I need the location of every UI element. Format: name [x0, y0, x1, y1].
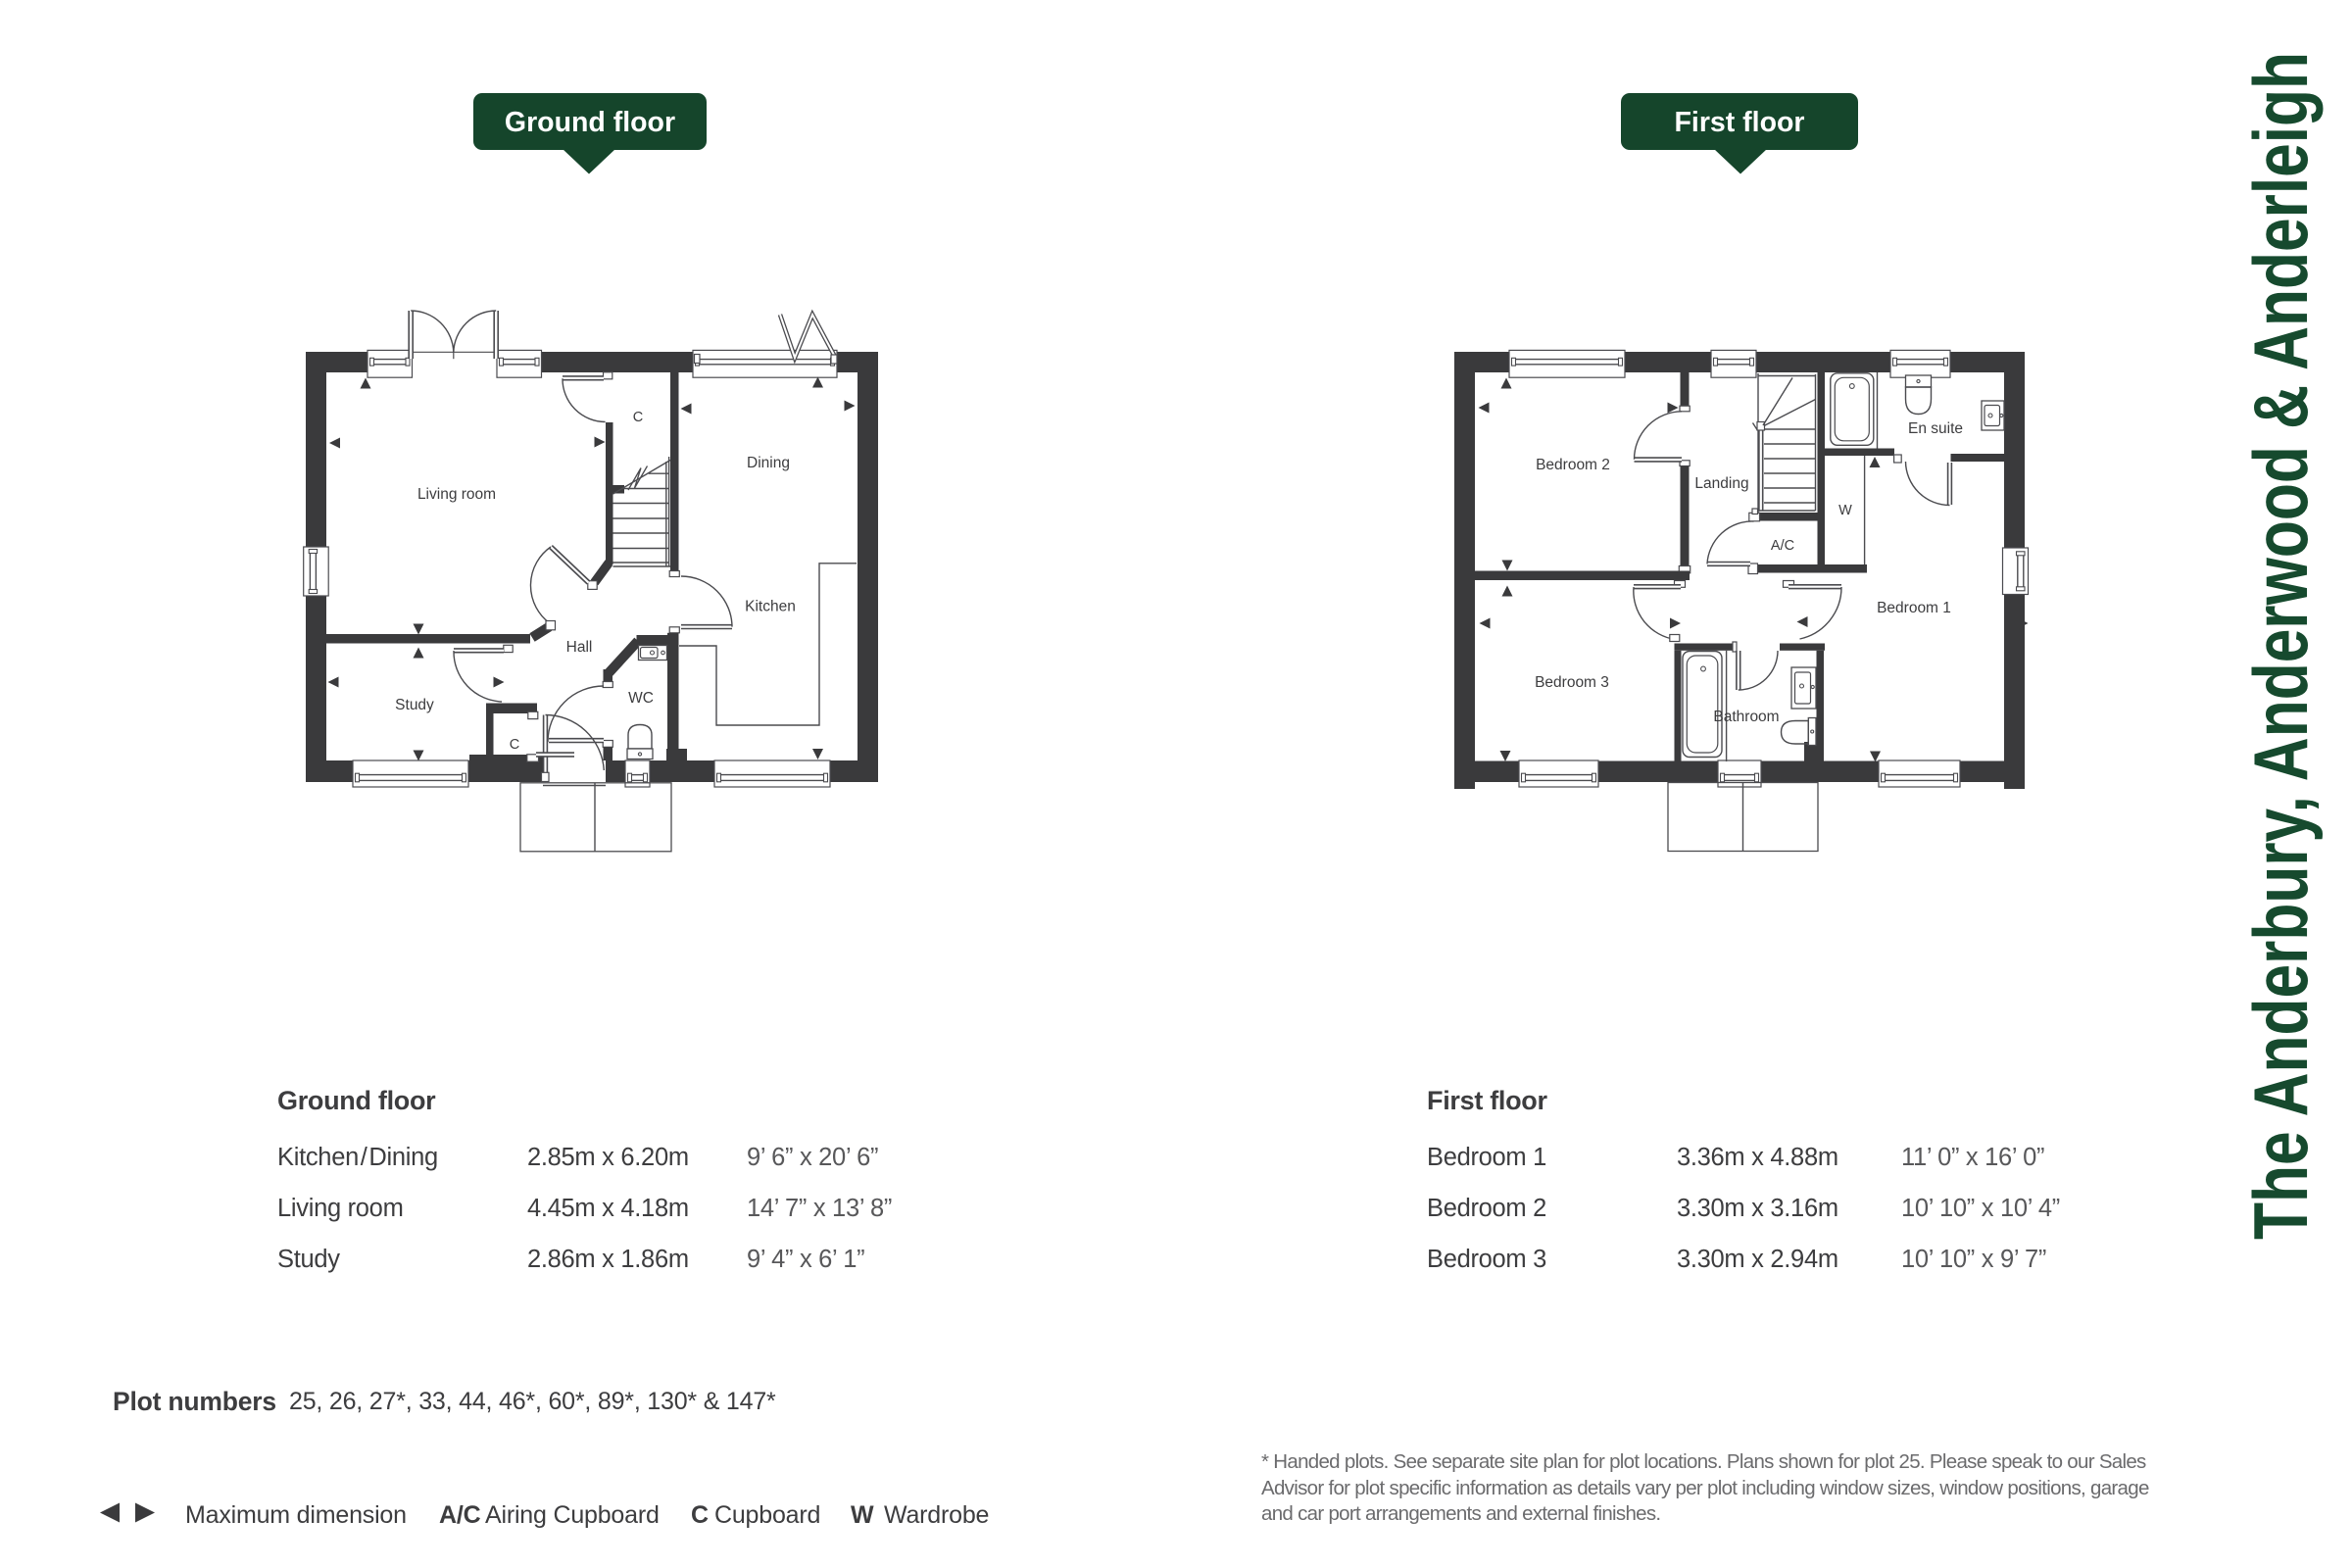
svg-text:Kitchen: Kitchen [745, 599, 796, 615]
svg-text:Bedroom 3: Bedroom 3 [1535, 674, 1609, 691]
svg-text:First floor: First floor [1675, 107, 1805, 138]
svg-text:Ground floor: Ground floor [505, 107, 675, 138]
svg-text:A/C: A/C [1771, 538, 1794, 554]
svg-text:Bathroom: Bathroom [1713, 709, 1779, 725]
svg-text:Hall: Hall [566, 639, 593, 656]
svg-text:The Anderbury, Anderwood & And: The Anderbury, Anderwood & Anderleigh [2237, 52, 2324, 1240]
svg-text:WC: WC [628, 690, 654, 707]
svg-text:Landing: Landing [1694, 475, 1748, 492]
svg-text:C: C [633, 410, 643, 425]
svg-text:W: W [1838, 503, 1852, 518]
svg-text:Dining: Dining [747, 455, 790, 471]
svg-text:En suite: En suite [1908, 420, 1963, 437]
svg-text:Bedroom 1: Bedroom 1 [1877, 600, 1951, 616]
svg-text:Living room: Living room [417, 486, 496, 503]
svg-text:Study: Study [395, 697, 434, 713]
svg-text:Bedroom 2: Bedroom 2 [1536, 457, 1610, 473]
svg-text:C: C [510, 737, 519, 753]
